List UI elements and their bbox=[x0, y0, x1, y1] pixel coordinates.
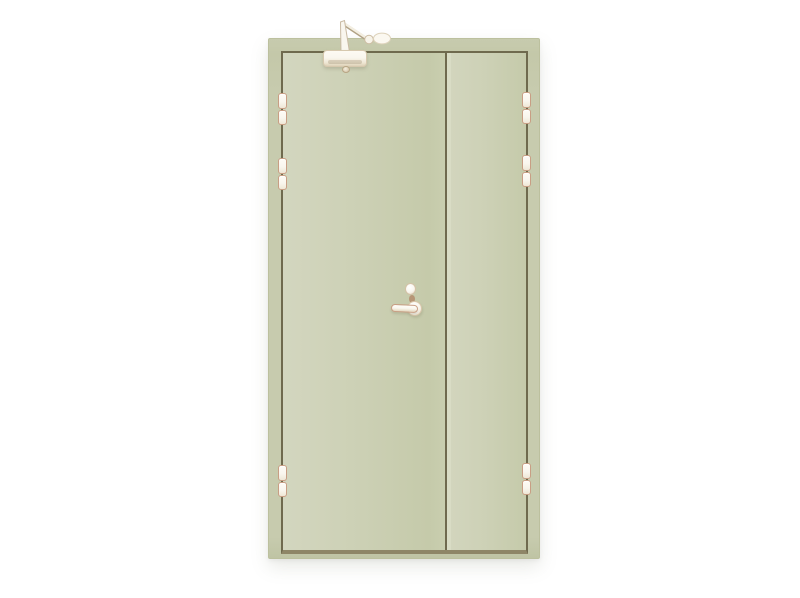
hinge-right-bottom bbox=[522, 463, 531, 495]
hinge-knuckle bbox=[278, 110, 287, 126]
hinge-knuckle bbox=[522, 92, 531, 108]
hinge-knuckle bbox=[278, 465, 287, 481]
product-photo-canvas bbox=[0, 0, 800, 598]
hinge-knuckle bbox=[522, 480, 531, 496]
hinge-left-top bbox=[278, 93, 287, 125]
right-door-leaf bbox=[451, 53, 526, 550]
hinge-knuckle bbox=[522, 463, 531, 479]
hinge-knuckle bbox=[278, 175, 287, 191]
door-closer-arm bbox=[315, 12, 400, 82]
hinge-knuckle bbox=[522, 172, 531, 188]
hinge-knuckle bbox=[278, 93, 287, 109]
hinge-right-top bbox=[522, 92, 531, 124]
hinge-right-upper bbox=[522, 155, 531, 187]
door-closer-valve-screw bbox=[342, 66, 350, 73]
fire-door-assembly bbox=[268, 38, 540, 559]
lock-cylinder bbox=[405, 283, 416, 295]
hinge-knuckle bbox=[522, 155, 531, 171]
hinge-knuckle bbox=[278, 158, 287, 174]
hinge-knuckle bbox=[522, 109, 531, 125]
hinge-left-bottom bbox=[278, 465, 287, 497]
hinge-left-upper bbox=[278, 158, 287, 190]
door-closer-body bbox=[323, 50, 367, 67]
door-reveal-groove bbox=[281, 51, 528, 554]
lever-handle bbox=[391, 304, 418, 313]
hinge-knuckle bbox=[278, 482, 287, 498]
left-door-leaf bbox=[283, 53, 445, 550]
